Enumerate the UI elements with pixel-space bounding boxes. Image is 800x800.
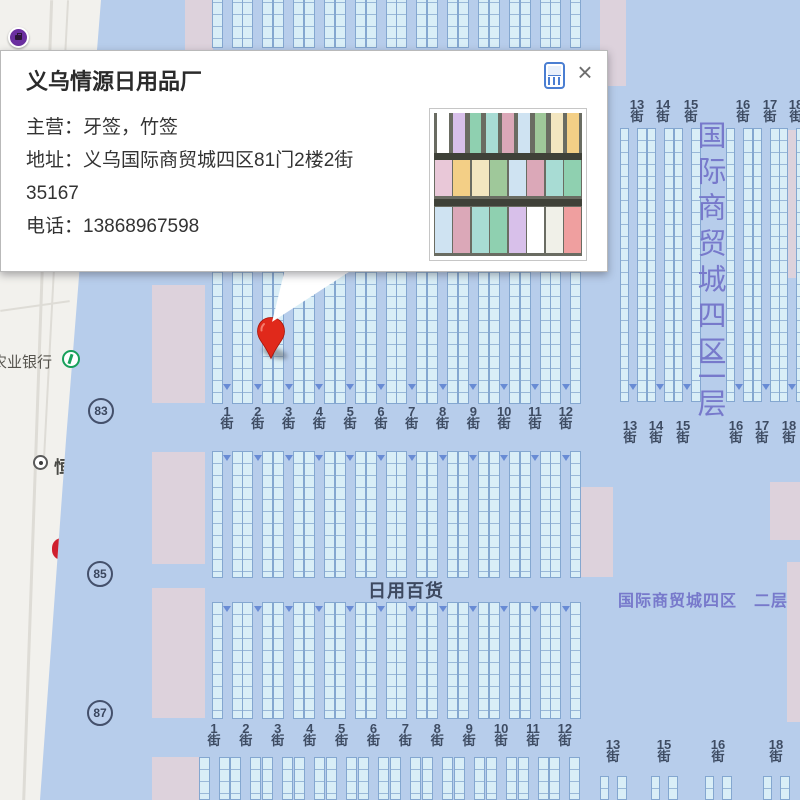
stall-column <box>550 451 561 578</box>
stall-column <box>396 602 407 719</box>
stall-column <box>273 602 284 719</box>
photo-item <box>435 160 452 196</box>
stall-column <box>282 757 293 800</box>
partial-poi-label: 恒 <box>54 453 71 478</box>
stall-column <box>294 757 305 800</box>
stall-column <box>458 451 469 578</box>
street-label: 13街 <box>606 739 620 763</box>
photo-item <box>490 207 507 253</box>
photo-item <box>551 113 563 153</box>
stall-column <box>474 757 485 800</box>
street-arrow-icon <box>377 384 385 390</box>
stall-column <box>540 602 551 719</box>
stall-column <box>335 0 346 48</box>
stall-column <box>540 451 551 578</box>
phone-screen <box>548 66 561 76</box>
stall-column <box>366 602 377 719</box>
stall-column <box>232 451 243 578</box>
photo-item <box>470 113 482 153</box>
street-arrow-icon <box>315 455 323 461</box>
stall-column <box>390 757 401 800</box>
facility-block <box>152 588 205 718</box>
photo-item <box>472 207 489 253</box>
facility-block <box>787 562 800 722</box>
street-label: 16街 <box>736 99 750 123</box>
stall-column <box>230 757 241 800</box>
street-label: 8街 <box>436 406 449 430</box>
bank-poi-label: 农业银行 <box>0 351 52 372</box>
street-arrow-icon <box>346 384 354 390</box>
photo-item <box>490 160 507 196</box>
photo-item <box>509 160 526 196</box>
stall-column <box>489 602 500 719</box>
stall-column <box>378 757 389 800</box>
street-arrow-icon <box>500 455 508 461</box>
street-arrow-icon <box>562 384 570 390</box>
street-label: 18街 <box>789 99 800 123</box>
stall-column <box>668 776 678 800</box>
stall-column <box>458 0 469 48</box>
stall-column <box>212 0 223 48</box>
photo-item <box>564 207 581 253</box>
photo-shelf <box>434 199 582 206</box>
street-arrow-icon <box>408 384 416 390</box>
stall-column <box>386 0 397 48</box>
stall-column <box>366 451 377 578</box>
stall-column <box>549 757 560 800</box>
stall-column <box>447 451 458 578</box>
street-label: 10街 <box>494 723 508 747</box>
stall-column <box>242 602 253 719</box>
facility-block <box>770 482 800 540</box>
stall-column <box>199 757 210 800</box>
stall-column <box>386 602 397 719</box>
street-arrow-icon <box>469 606 477 612</box>
stall-column <box>262 602 273 719</box>
street-label: 16街 <box>711 739 725 763</box>
photo-item <box>472 160 489 196</box>
stall-column <box>478 0 489 48</box>
stall-column <box>212 451 223 578</box>
street-label: 4街 <box>303 723 316 747</box>
stall-column <box>304 602 315 719</box>
stall-column <box>506 757 517 800</box>
stall-column <box>335 451 346 578</box>
street-label: 11街 <box>528 406 542 430</box>
photo-item <box>546 160 563 196</box>
stall-column <box>242 0 253 48</box>
stall-column <box>674 128 684 402</box>
street-label: 6街 <box>367 723 380 747</box>
street-label: 15街 <box>684 99 698 123</box>
street-arrow-icon <box>439 606 447 612</box>
street-label: 14街 <box>656 99 670 123</box>
street-arrow-icon <box>562 455 570 461</box>
street-label: 1街 <box>207 723 220 747</box>
stall-column <box>262 0 273 48</box>
stall-column <box>570 451 581 578</box>
stall-column <box>664 128 674 402</box>
street-arrow-icon <box>223 606 231 612</box>
stall-column <box>250 757 261 800</box>
dot-poi-icon[interactable] <box>33 455 48 470</box>
street-label: 18街 <box>769 739 783 763</box>
popup-title: 义乌情源日用品厂 <box>26 64 202 96</box>
street-label: 4街 <box>313 406 326 430</box>
floor-name-vertical: 二层 <box>692 352 726 424</box>
stall-column <box>304 451 315 578</box>
photo-item <box>527 160 544 196</box>
street-label: 15街 <box>676 420 690 444</box>
facility-block <box>152 452 205 564</box>
gate-badge: 87 <box>87 700 113 726</box>
street-arrow-icon <box>346 455 354 461</box>
stall-column <box>262 451 273 578</box>
stall-column <box>509 602 520 719</box>
stall-column <box>779 128 789 402</box>
stall-column <box>454 757 465 800</box>
stall-column <box>447 0 458 48</box>
stall-column <box>324 0 335 48</box>
stall-column <box>753 128 763 402</box>
street-label: 13街 <box>630 99 644 123</box>
photo-item <box>546 207 563 253</box>
street-arrow-icon <box>377 606 385 612</box>
stall-column <box>293 0 304 48</box>
street-arrow-icon <box>562 606 570 612</box>
street-arrow-icon <box>788 384 796 390</box>
stall-column <box>600 776 610 800</box>
street-label: 3街 <box>282 406 295 430</box>
street-label: 13街 <box>623 420 637 444</box>
photo-item <box>527 207 544 253</box>
street-arrow-icon <box>223 455 231 461</box>
photo-item <box>486 113 498 153</box>
stall-column <box>335 602 346 719</box>
stall-column <box>326 757 337 800</box>
stall-column <box>324 451 335 578</box>
street-arrow-icon <box>439 384 447 390</box>
street-arrow-icon <box>531 606 539 612</box>
street-arrow-icon <box>285 384 293 390</box>
road-line <box>0 300 70 312</box>
street-label: 2街 <box>239 723 252 747</box>
stall-column <box>569 757 580 800</box>
stall-column <box>355 602 366 719</box>
stall-column <box>763 776 773 800</box>
photo-item <box>437 113 449 153</box>
photo-item <box>453 207 470 253</box>
building-name-vertical: 国际商贸城四区 <box>692 120 726 372</box>
street-label: 15街 <box>657 739 671 763</box>
stall-column <box>550 0 561 48</box>
stall-column <box>422 757 433 800</box>
stall-column <box>489 0 500 48</box>
stall-column <box>212 602 223 719</box>
stall-column <box>520 451 531 578</box>
street-label: 9街 <box>467 406 480 430</box>
stall-column <box>232 0 243 48</box>
gate-badge: 85 <box>87 561 113 587</box>
street-arrow-icon <box>254 606 262 612</box>
street-label: 8街 <box>431 723 444 747</box>
stall-column <box>509 451 520 578</box>
street-arrow-icon <box>223 384 231 390</box>
stall-column <box>396 0 407 48</box>
stall-column <box>478 451 489 578</box>
stall-column <box>570 602 581 719</box>
street-label: 7街 <box>399 723 412 747</box>
stall-column <box>358 757 369 800</box>
street-label: 9街 <box>463 723 476 747</box>
street-label: 6街 <box>374 406 387 430</box>
stall-column <box>796 128 800 402</box>
bank-poi-icon[interactable] <box>62 350 80 368</box>
stall-column <box>509 0 520 48</box>
phone-icon[interactable] <box>544 62 565 89</box>
street-arrow-icon <box>346 606 354 612</box>
stall-column <box>489 451 500 578</box>
street-arrow-icon <box>469 384 477 390</box>
close-icon[interactable]: × <box>572 59 598 85</box>
street-arrow-icon <box>656 384 664 390</box>
location-pin-icon[interactable] <box>254 316 288 365</box>
stall-column <box>324 602 335 719</box>
stall-column <box>416 602 427 719</box>
photo-item <box>509 207 526 253</box>
stall-column <box>262 757 273 800</box>
red-poi-icon <box>52 538 63 560</box>
stall-column <box>427 0 438 48</box>
street-arrow-icon <box>408 455 416 461</box>
photo-item <box>564 160 581 196</box>
popup-field-products: 主营：牙签，竹签 <box>26 111 376 144</box>
shop-poi-marker-icon[interactable] <box>8 27 29 48</box>
stall-column <box>273 451 284 578</box>
stall-column <box>518 757 529 800</box>
stall-column <box>520 0 531 48</box>
street-label: 3街 <box>271 723 284 747</box>
street-label: 2街 <box>251 406 264 430</box>
popup-field-phone: 电话：13868967598 <box>26 210 376 243</box>
gate-badge: 83 <box>88 398 114 424</box>
stall-column <box>442 757 453 800</box>
info-popup: 义乌情源日用品厂 × 主营：牙签，竹签 地址：义乌国际商贸城四区81门2楼2街3… <box>0 50 608 272</box>
stall-column <box>722 776 732 800</box>
stall-column <box>273 0 284 48</box>
photo-item <box>453 113 465 153</box>
photo-item <box>435 207 452 253</box>
street-arrow-icon <box>500 384 508 390</box>
map-view[interactable]: 恒 农业银行 国际商贸城四区 二层 日用百货 国际商贸城四区 二层 838587… <box>0 0 800 800</box>
street-label: 12街 <box>558 723 572 747</box>
facility-block <box>152 285 205 403</box>
street-label: 11街 <box>526 723 540 747</box>
street-arrow-icon <box>629 384 637 390</box>
street-arrow-icon <box>762 384 770 390</box>
stall-column <box>637 128 647 402</box>
photo-item <box>567 113 579 153</box>
street-label: 17街 <box>763 99 777 123</box>
stall-column <box>447 602 458 719</box>
storefront-photo-image <box>434 113 582 256</box>
stall-column <box>293 451 304 578</box>
street-label: 1街 <box>220 406 233 430</box>
street-arrow-icon <box>254 384 262 390</box>
street-arrow-icon <box>408 606 416 612</box>
stall-column <box>366 0 377 48</box>
street-arrow-icon <box>315 384 323 390</box>
stall-column <box>416 0 427 48</box>
street-label: 7街 <box>405 406 418 430</box>
street-arrow-icon <box>254 455 262 461</box>
stall-column <box>396 451 407 578</box>
photo-item <box>518 113 530 153</box>
stall-column <box>355 451 366 578</box>
stall-column <box>780 776 790 800</box>
briefcase-icon <box>15 35 22 40</box>
street-arrow-icon <box>285 455 293 461</box>
photo-item <box>502 113 514 153</box>
facility-block <box>152 757 205 800</box>
street-label: 5街 <box>335 723 348 747</box>
stall-column <box>743 128 753 402</box>
building-floor-label: 国际商贸城四区 二层 <box>618 587 788 611</box>
stall-column <box>647 128 657 402</box>
stall-column <box>651 776 661 800</box>
storefront-photo[interactable] <box>429 108 587 261</box>
stall-column <box>617 776 627 800</box>
street-arrow-icon <box>683 384 691 390</box>
street-arrow-icon <box>315 606 323 612</box>
street-arrow-icon <box>377 455 385 461</box>
street-arrow-icon <box>531 455 539 461</box>
popup-field-address: 地址：义乌国际商贸城四区81门2楼2街35167 <box>26 144 376 210</box>
stall-column <box>346 757 357 800</box>
stall-column <box>705 776 715 800</box>
stall-column <box>458 602 469 719</box>
street-arrow-icon <box>285 606 293 612</box>
stall-column <box>538 757 549 800</box>
stall-column <box>386 451 397 578</box>
photo-item <box>535 113 547 153</box>
stall-column <box>570 0 581 48</box>
street-arrow-icon <box>735 384 743 390</box>
stall-column <box>410 757 421 800</box>
phone-keypad <box>548 77 561 85</box>
popup-body: 主营：牙签，竹签 地址：义乌国际商贸城四区81门2楼2街35167 电话：138… <box>26 111 376 243</box>
street-label: 18街 <box>782 420 796 444</box>
street-label: 14街 <box>649 420 663 444</box>
stall-column <box>486 757 497 800</box>
stall-column <box>219 757 230 800</box>
street-arrow-icon <box>531 384 539 390</box>
stall-column <box>620 128 630 402</box>
street-label: 16街 <box>729 420 743 444</box>
street-label: 5街 <box>344 406 357 430</box>
stall-column <box>355 0 366 48</box>
street-arrow-icon <box>439 455 447 461</box>
stall-column <box>540 0 551 48</box>
street-label: 17街 <box>755 420 769 444</box>
stall-column <box>416 451 427 578</box>
stall-column <box>520 602 531 719</box>
stall-column <box>478 602 489 719</box>
street-arrow-icon <box>500 606 508 612</box>
stall-column <box>304 0 315 48</box>
stall-column <box>427 451 438 578</box>
stall-column <box>314 757 325 800</box>
street-label: 12街 <box>559 406 573 430</box>
stall-column <box>427 602 438 719</box>
corridor-category-label: 日用百货 <box>368 577 444 603</box>
stall-column <box>726 128 736 402</box>
photo-shelf <box>434 153 582 160</box>
facility-block <box>185 0 213 50</box>
street-label: 10街 <box>497 406 511 430</box>
street-arrow-icon <box>469 455 477 461</box>
stall-column <box>293 602 304 719</box>
photo-item <box>453 160 470 196</box>
stall-column <box>232 602 243 719</box>
stall-column <box>242 451 253 578</box>
stall-column <box>550 602 561 719</box>
